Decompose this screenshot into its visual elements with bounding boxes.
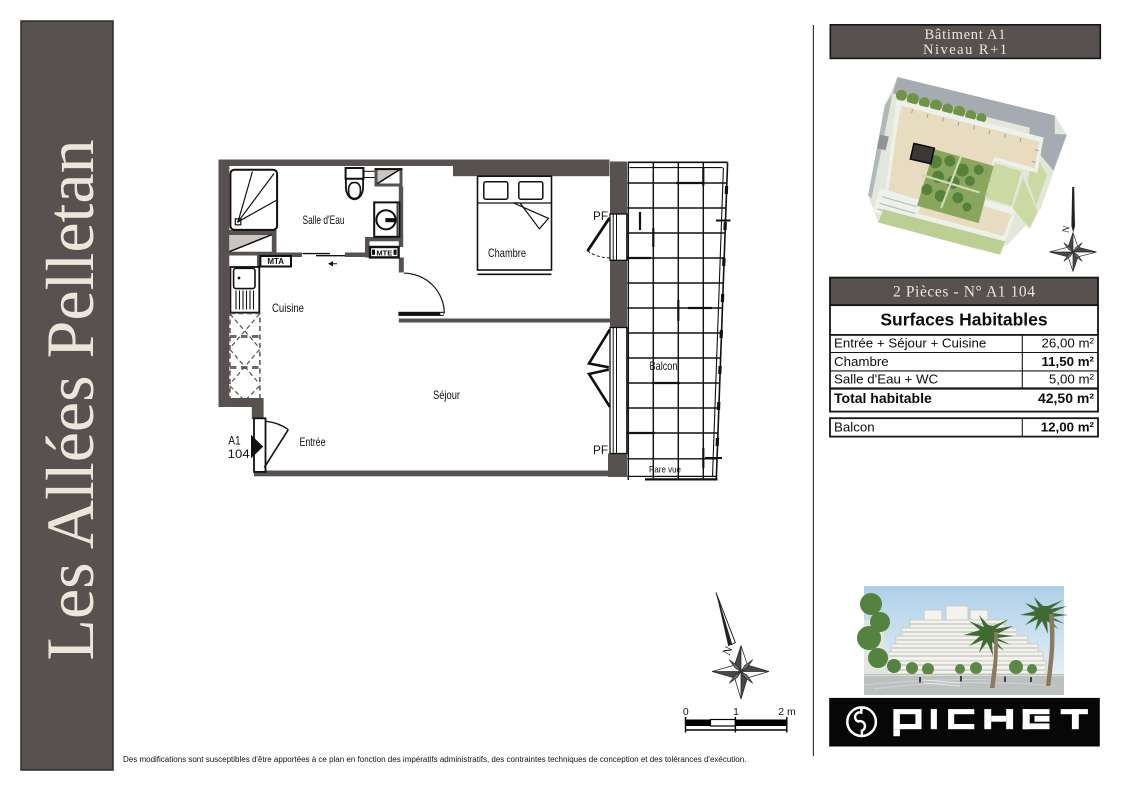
svg-text:0: 0	[683, 706, 689, 718]
svg-text:A1: A1	[228, 434, 241, 448]
svg-text:Bâtiment A1: Bâtiment A1	[925, 27, 1006, 43]
svg-text:42,50 m²: 42,50 m²	[1038, 390, 1094, 406]
svg-text:Balcon: Balcon	[834, 420, 875, 435]
svg-text:Entrée: Entrée	[300, 435, 326, 449]
svg-text:Balcon: Balcon	[650, 359, 678, 373]
svg-text:Pare vue: Pare vue	[649, 465, 681, 476]
svg-text:Salle d'Eau: Salle d'Eau	[303, 213, 345, 227]
svg-text:Chambre: Chambre	[834, 354, 889, 369]
svg-text:Chambre: Chambre	[488, 246, 526, 260]
svg-text:MTE: MTE	[376, 248, 392, 257]
svg-text:1: 1	[733, 706, 739, 718]
svg-text:11,50 m²: 11,50 m²	[1042, 354, 1095, 369]
svg-text:5,00 m²: 5,00 m²	[1049, 372, 1095, 387]
svg-text:2 m: 2 m	[778, 706, 796, 718]
svg-text:Total habitable: Total habitable	[834, 390, 932, 406]
svg-text:26,00 m²: 26,00 m²	[1042, 336, 1095, 351]
svg-text:Cuisine: Cuisine	[272, 301, 304, 315]
svg-text:Séjour: Séjour	[433, 388, 460, 402]
svg-text:Niveau R+1: Niveau R+1	[923, 42, 1007, 58]
svg-text:2 Pièces - N° A1 104: 2 Pièces - N° A1 104	[893, 284, 1035, 301]
svg-text:Des modifications sont suscept: Des modifications sont susceptibles d'êt…	[123, 755, 746, 764]
svg-text:Entrée + Séjour + Cuisine: Entrée + Séjour + Cuisine	[834, 336, 986, 351]
svg-text:PF: PF	[593, 445, 608, 457]
svg-text:Salle d'Eau + WC: Salle d'Eau + WC	[834, 372, 939, 387]
svg-text:MTA: MTA	[267, 257, 284, 266]
svg-text:104: 104	[228, 447, 250, 461]
svg-text:Les Allées Pelletan: Les Allées Pelletan	[32, 139, 108, 660]
svg-text:Surfaces Habitables: Surfaces Habitables	[880, 310, 1048, 330]
svg-text:N: N	[1061, 225, 1072, 234]
svg-text:12,00 m²: 12,00 m²	[1041, 420, 1095, 435]
svg-text:PF: PF	[593, 211, 608, 223]
